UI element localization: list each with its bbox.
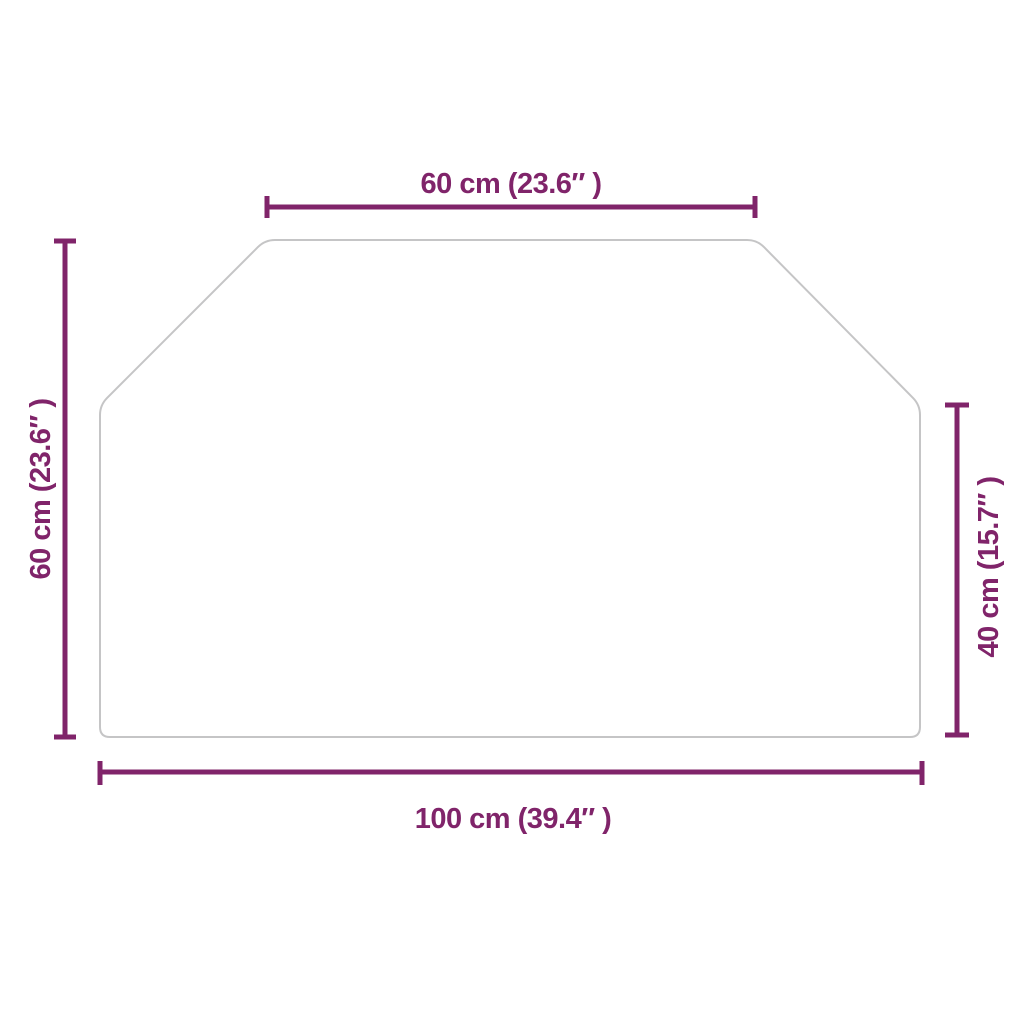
- top-dimension-label: 60 cm (23.6″ ): [421, 168, 602, 200]
- glass-plate-outline: [100, 240, 920, 737]
- top-dimension: 60 cm (23.6″ ): [267, 168, 755, 218]
- left-dimension-label: 60 cm (23.6″ ): [25, 399, 57, 580]
- diagram-canvas: 60 cm (23.6″ ) 60 cm (23.6″ ) 40 cm (15.…: [0, 0, 1024, 1024]
- right-dimension: 40 cm (15.7″ ): [945, 405, 1005, 735]
- dimension-diagram: 60 cm (23.6″ ) 60 cm (23.6″ ) 40 cm (15.…: [0, 0, 1024, 1024]
- right-dimension-label: 40 cm (15.7″ ): [973, 477, 1005, 658]
- bottom-dimension: 100 cm (39.4″ ): [100, 761, 922, 835]
- left-dimension: 60 cm (23.6″ ): [25, 241, 76, 737]
- bottom-dimension-label: 100 cm (39.4″ ): [415, 803, 612, 835]
